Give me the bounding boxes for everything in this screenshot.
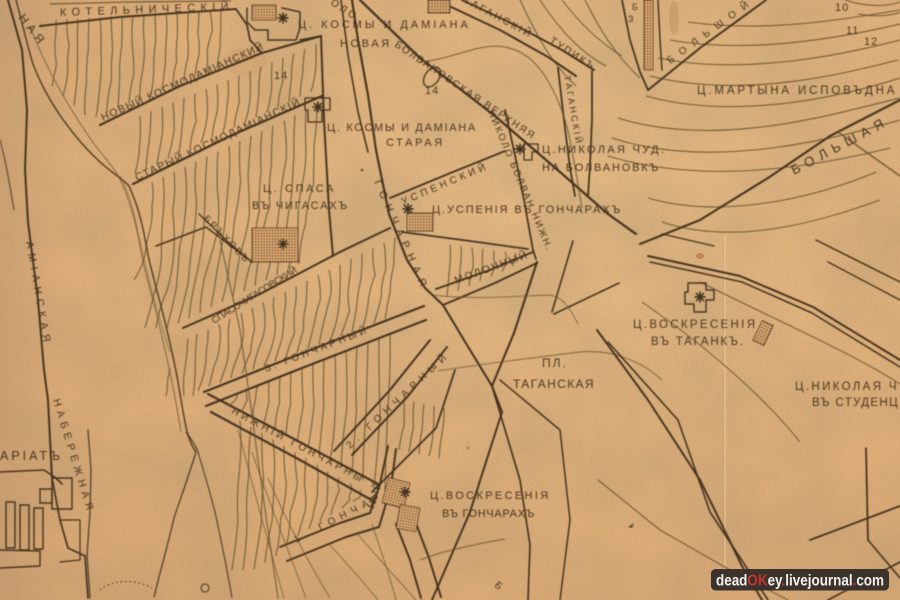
svg-text:СТАРАЯ: СТАРАЯ [386, 137, 445, 149]
svg-text:Ц.ВОСКРЕСЕНІЯ: Ц.ВОСКРЕСЕНІЯ [633, 319, 757, 331]
svg-text:ПЛ.: ПЛ. [542, 356, 568, 370]
svg-text:14: 14 [274, 70, 288, 82]
svg-text:ТАГАНСКАЯ: ТАГАНСКАЯ [513, 377, 597, 391]
svg-text:Б: Б [632, 2, 640, 12]
svg-text:14: 14 [425, 85, 439, 97]
svg-text:ВЪ ГОНЧАРАХЪ: ВЪ ГОНЧАРАХЪ [442, 508, 536, 520]
svg-text:Ц. СПАСА: Ц. СПАСА [263, 183, 336, 195]
svg-text:З: З [628, 14, 636, 24]
svg-text:Ц.МАРТЫНА ИСПОВЪДНА: Ц.МАРТЫНА ИСПОВЪДНА [697, 85, 897, 97]
svg-text:Ц.НИКОЛАЯ ЧУД.: Ц.НИКОЛАЯ ЧУД. [542, 144, 666, 156]
svg-text:10: 10 [835, 2, 849, 14]
svg-text:12: 12 [864, 36, 878, 48]
svg-text:ВЪ ТАГАНКЪ.: ВЪ ТАГАНКЪ. [651, 336, 745, 348]
svg-text:НОВАЯ: НОВАЯ [340, 38, 392, 50]
svg-text:АРІАТЪ: АРІАТЪ [0, 449, 63, 463]
svg-text:НА БОЛВАНОВКЪ: НА БОЛВАНОВКЪ [542, 162, 660, 174]
svg-text:ВЪ СТУДЕНЦ: ВЪ СТУДЕНЦ [812, 397, 900, 409]
svg-text:deadOKey.livejournal.com: deadOKey.livejournal.com [716, 573, 884, 590]
svg-text:Ц. КОСМЫ И ДАМІАНА: Ц. КОСМЫ И ДАМІАНА [327, 122, 477, 134]
svg-text:Ц.ВОСКРЕСЕНІЯ: Ц.ВОСКРЕСЕНІЯ [430, 490, 550, 502]
svg-text:Ц. КОСМЫ И ДАМІАНА: Ц. КОСМЫ И ДАМІАНА [298, 19, 470, 31]
svg-text:11: 11 [846, 25, 859, 37]
svg-text:ВЪ ЧИГАСАХЪ: ВЪ ЧИГАСАХЪ [252, 200, 349, 212]
svg-text:Ц.НИКОЛАЯ Ч: Ц.НИКОЛАЯ Ч [795, 381, 899, 393]
